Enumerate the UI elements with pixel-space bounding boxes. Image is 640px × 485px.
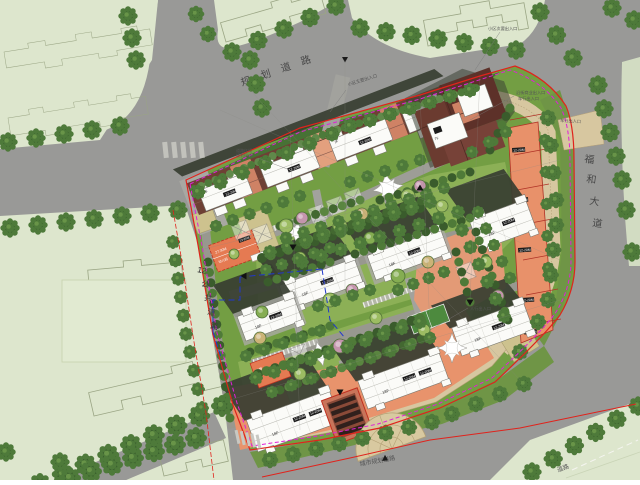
svg-text:12-20M: 12-20M xyxy=(513,148,525,153)
svg-text:规划绿线: 规划绿线 xyxy=(236,152,252,158)
svg-text:人行出入口: 人行出入口 xyxy=(470,305,491,312)
svg-text:车行出入口: 车行出入口 xyxy=(518,95,539,102)
svg-text:小区次要出入口: 小区次要出入口 xyxy=(488,25,517,32)
svg-text:沿街商业出入口: 沿街商业出入口 xyxy=(516,89,545,96)
svg-text:12-20M: 12-20M xyxy=(519,248,531,253)
svg-text:和: 和 xyxy=(586,173,598,186)
